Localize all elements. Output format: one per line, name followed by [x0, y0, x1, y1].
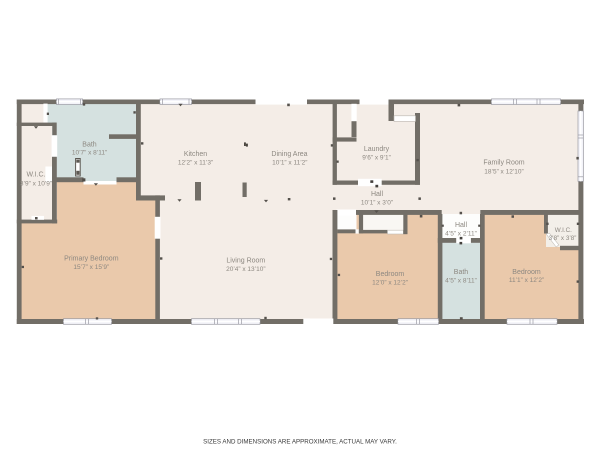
svg-text:Bedroom: Bedroom	[512, 269, 541, 276]
svg-text:Hall: Hall	[455, 222, 468, 229]
svg-text:W.I.C.: W.I.C.	[26, 172, 45, 179]
svg-text:3’8” x 3’8”: 3’8” x 3’8”	[549, 235, 577, 242]
svg-text:12’2” x 11’3”: 12’2” x 11’3”	[178, 159, 213, 166]
svg-text:Bedroom: Bedroom	[376, 271, 405, 278]
svg-text:10’7” x 8’11”: 10’7” x 8’11”	[72, 150, 107, 157]
svg-text:SIZES AND DIMENSIONS ARE APPRO: SIZES AND DIMENSIONS ARE APPROXIMATE, AC…	[203, 439, 397, 446]
svg-text:Dining Area: Dining Area	[271, 151, 307, 158]
svg-text:Hall: Hall	[371, 191, 384, 198]
svg-text:11’1” x 12’2”: 11’1” x 12’2”	[509, 277, 544, 284]
svg-text:20’4” x 13’10”: 20’4” x 13’10”	[226, 266, 265, 273]
svg-text:Laundry: Laundry	[364, 146, 390, 153]
svg-text:10’1” x 3’0”: 10’1” x 3’0”	[361, 200, 393, 207]
svg-text:3’9” x 10’9”: 3’9” x 10’9”	[20, 181, 52, 188]
svg-text:Kitchen: Kitchen	[184, 151, 207, 158]
svg-text:Bath: Bath	[82, 142, 97, 149]
svg-text:15’7” x 15’9”: 15’7” x 15’9”	[73, 264, 109, 271]
svg-text:18’5” x 12’10”: 18’5” x 12’10”	[484, 169, 523, 176]
svg-text:9’6” x 9’1”: 9’6” x 9’1”	[362, 155, 391, 162]
svg-text:W.I.C.: W.I.C.	[555, 227, 572, 234]
svg-text:4’5” x 2’11”: 4’5” x 2’11”	[445, 230, 477, 237]
svg-text:Living Room: Living Room	[226, 258, 265, 265]
svg-text:4’5” x 8’11”: 4’5” x 8’11”	[445, 278, 477, 285]
svg-text:Primary Bedroom: Primary Bedroom	[64, 256, 119, 263]
svg-text:12’0” x 12’2”: 12’0” x 12’2”	[372, 280, 408, 287]
svg-text:Family Room: Family Room	[483, 160, 524, 167]
svg-text:10’1” x 11’2”: 10’1” x 11’2”	[272, 159, 307, 166]
svg-text:Bath: Bath	[454, 269, 469, 276]
